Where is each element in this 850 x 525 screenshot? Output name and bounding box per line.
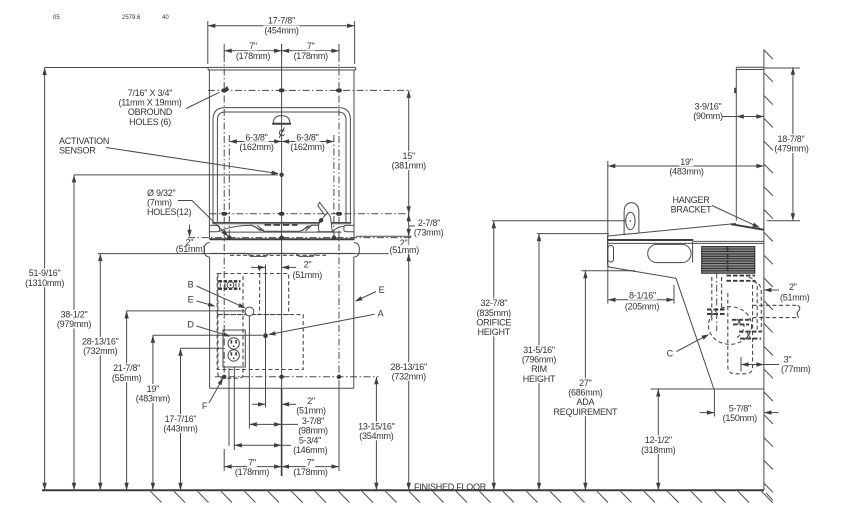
svg-text:2579.6: 2579.6 bbox=[122, 15, 141, 21]
svg-text:(51mm): (51mm) bbox=[293, 270, 323, 280]
svg-text:(354mm): (354mm) bbox=[359, 431, 394, 441]
svg-text:(73mm): (73mm) bbox=[414, 228, 444, 238]
svg-text:13-15/16": 13-15/16" bbox=[358, 421, 395, 431]
svg-text:(51mm): (51mm) bbox=[296, 406, 326, 416]
svg-text:(178mm): (178mm) bbox=[235, 467, 270, 477]
svg-text:ACTIVATION: ACTIVATION bbox=[59, 136, 109, 146]
svg-text:12-1/2": 12-1/2" bbox=[645, 435, 672, 445]
svg-text:E: E bbox=[379, 285, 385, 295]
svg-text:(205mm): (205mm) bbox=[625, 302, 660, 312]
svg-text:6-3/8": 6-3/8" bbox=[296, 132, 318, 142]
svg-text:(178mm): (178mm) bbox=[236, 51, 271, 61]
svg-text:REQUIREMENT: REQUIREMENT bbox=[554, 407, 619, 417]
svg-text:19": 19" bbox=[147, 384, 160, 394]
svg-text:C: C bbox=[667, 349, 674, 359]
svg-text:3-7/8": 3-7/8" bbox=[302, 416, 324, 426]
svg-text:(178mm): (178mm) bbox=[293, 467, 328, 477]
svg-text:B: B bbox=[188, 280, 194, 290]
svg-text:(51mm): (51mm) bbox=[780, 292, 810, 302]
svg-text:SENSOR: SENSOR bbox=[59, 146, 96, 156]
svg-text:HANGER: HANGER bbox=[672, 195, 710, 205]
svg-text:(90mm): (90mm) bbox=[693, 111, 723, 121]
svg-text:HEIGHT: HEIGHT bbox=[478, 327, 511, 337]
svg-text:(479mm): (479mm) bbox=[774, 144, 809, 154]
svg-text:(732mm): (732mm) bbox=[392, 372, 427, 382]
svg-text:(1310mm): (1310mm) bbox=[25, 278, 64, 288]
svg-text:(11mm X 19mm): (11mm X 19mm) bbox=[118, 98, 181, 108]
svg-text:ADA: ADA bbox=[577, 397, 595, 407]
svg-text:3-9/16": 3-9/16" bbox=[695, 102, 722, 112]
svg-text:D: D bbox=[187, 320, 194, 330]
svg-text:40: 40 bbox=[162, 15, 169, 21]
svg-text:51-9/16": 51-9/16" bbox=[29, 268, 61, 278]
svg-text:(979mm): (979mm) bbox=[57, 319, 92, 329]
svg-text:2-7/8": 2-7/8" bbox=[418, 218, 440, 228]
svg-text:5-7/8": 5-7/8" bbox=[729, 404, 751, 414]
svg-text:3": 3" bbox=[784, 355, 792, 365]
svg-text:(483mm): (483mm) bbox=[136, 394, 171, 404]
svg-text:(51mm): (51mm) bbox=[176, 244, 206, 254]
svg-text:(454mm): (454mm) bbox=[264, 25, 299, 35]
svg-text:7": 7" bbox=[249, 41, 257, 51]
svg-text:2": 2" bbox=[307, 396, 315, 406]
svg-text:(146mm): (146mm) bbox=[293, 445, 328, 455]
svg-text:38-1/2": 38-1/2" bbox=[61, 310, 88, 320]
svg-text:27": 27" bbox=[579, 378, 592, 388]
svg-text:19": 19" bbox=[680, 157, 693, 167]
svg-text:(443mm): (443mm) bbox=[163, 424, 198, 434]
svg-text:(51mm): (51mm) bbox=[390, 245, 420, 255]
svg-text:OBROUND: OBROUND bbox=[128, 107, 173, 117]
svg-text:Ø 9/32": Ø 9/32" bbox=[147, 188, 176, 198]
svg-text:(150mm): (150mm) bbox=[723, 413, 758, 423]
svg-text:(732mm): (732mm) bbox=[83, 346, 118, 356]
svg-text:6-3/8": 6-3/8" bbox=[245, 132, 267, 142]
svg-text:17-7/16": 17-7/16" bbox=[165, 414, 197, 424]
svg-text:2": 2" bbox=[304, 260, 312, 270]
svg-text:E: E bbox=[188, 295, 194, 305]
svg-text:18-7/8": 18-7/8" bbox=[778, 134, 805, 144]
svg-text:8-1/16": 8-1/16" bbox=[629, 290, 656, 300]
svg-text:HOLES (6): HOLES (6) bbox=[129, 117, 171, 127]
svg-text:(55mm): (55mm) bbox=[112, 373, 142, 383]
svg-text:HOLES(12): HOLES(12) bbox=[147, 207, 192, 217]
svg-text:(178mm): (178mm) bbox=[294, 51, 329, 61]
svg-text:RIM: RIM bbox=[531, 364, 547, 374]
svg-text:15": 15" bbox=[402, 151, 415, 161]
svg-text:21-7/8": 21-7/8" bbox=[113, 363, 140, 373]
svg-text:32-7/8": 32-7/8" bbox=[480, 298, 507, 308]
svg-text:7": 7" bbox=[307, 458, 315, 468]
svg-text:28-13/16": 28-13/16" bbox=[390, 362, 427, 372]
svg-text:17-7/8": 17-7/8" bbox=[268, 16, 295, 26]
svg-text:(162mm): (162mm) bbox=[290, 142, 325, 152]
svg-text:7/16" X 3/4": 7/16" X 3/4" bbox=[128, 88, 172, 98]
svg-text:(162mm): (162mm) bbox=[239, 142, 274, 152]
svg-text:F: F bbox=[202, 401, 208, 411]
svg-text:05: 05 bbox=[53, 15, 60, 21]
svg-text:HEIGHT: HEIGHT bbox=[523, 374, 556, 384]
svg-text:(381mm): (381mm) bbox=[392, 161, 427, 171]
svg-text:ORIFICE: ORIFICE bbox=[476, 317, 511, 327]
svg-text:BRACKET: BRACKET bbox=[671, 205, 713, 215]
svg-text:7": 7" bbox=[307, 41, 315, 51]
svg-text:7": 7" bbox=[248, 458, 256, 468]
svg-text:(835mm): (835mm) bbox=[477, 308, 512, 318]
svg-text:FINISHED FLOOR: FINISHED FLOOR bbox=[414, 482, 487, 492]
svg-text:5-3/4": 5-3/4" bbox=[299, 435, 321, 445]
svg-text:(686mm): (686mm) bbox=[568, 388, 603, 398]
svg-text:A: A bbox=[378, 308, 384, 318]
svg-text:(483mm): (483mm) bbox=[669, 166, 704, 176]
svg-text:(318mm): (318mm) bbox=[641, 445, 676, 455]
svg-text:31-5/16": 31-5/16" bbox=[523, 345, 555, 355]
svg-text:28-13/16": 28-13/16" bbox=[82, 337, 119, 347]
svg-text:2": 2" bbox=[789, 282, 797, 292]
svg-text:(7mm): (7mm) bbox=[147, 197, 172, 207]
svg-text:(98mm): (98mm) bbox=[298, 426, 328, 436]
svg-text:(796mm): (796mm) bbox=[522, 355, 557, 365]
svg-text:(77mm): (77mm) bbox=[781, 364, 811, 374]
